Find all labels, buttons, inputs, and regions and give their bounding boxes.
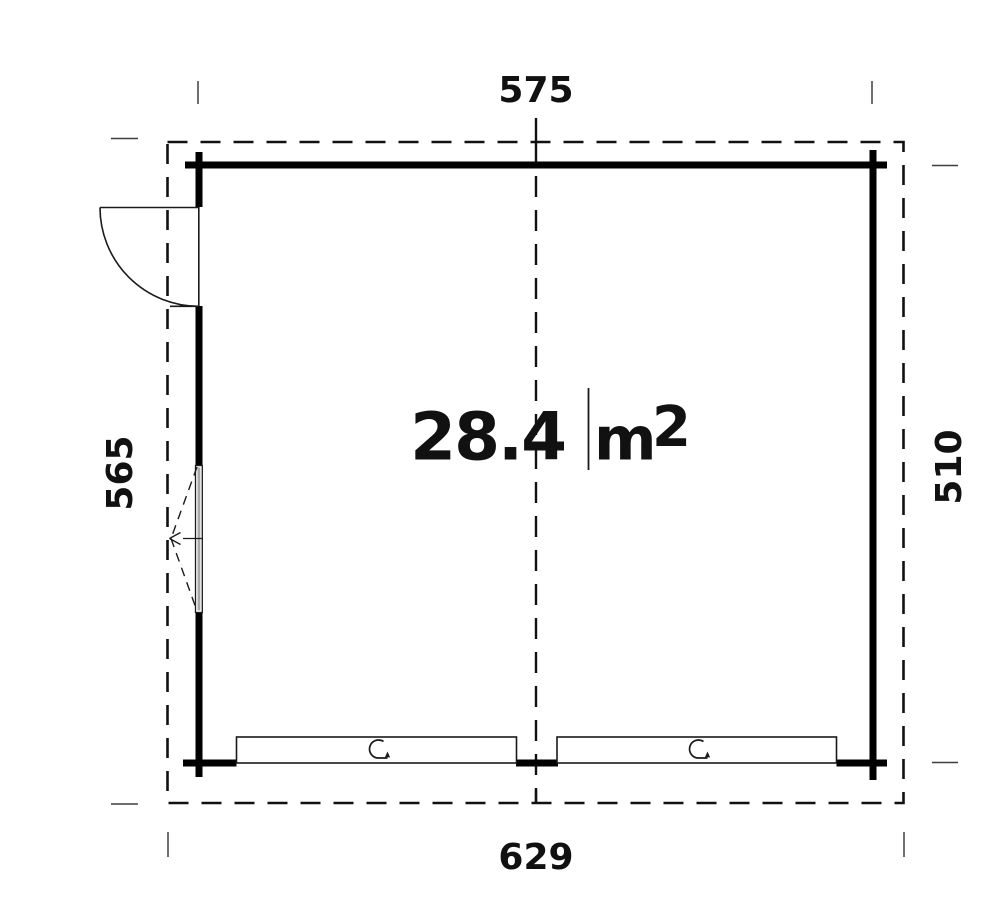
dimension-top-label: 575 <box>498 70 573 111</box>
dimension-left-label: 565 <box>100 435 141 510</box>
dimension-bottom-label: 629 <box>498 837 573 878</box>
area-value: 28.4 <box>410 399 565 476</box>
entry-door <box>100 207 199 306</box>
floor-plan-canvas: 575 629 565 510 28.4 m 2 <box>0 0 1000 923</box>
wall-left-upper <box>196 152 203 207</box>
wall-top <box>185 162 887 169</box>
window-tilt-dashed-icon <box>171 539 197 612</box>
area-unit: m <box>594 405 657 475</box>
door-swing-arc-icon <box>100 208 199 307</box>
wall-left-lower <box>196 613 203 777</box>
dimension-right-label: 510 <box>929 429 970 504</box>
window-arrow-upper-line <box>170 533 181 539</box>
wall-right <box>870 150 877 780</box>
floor-plan-drawing: 575 629 565 510 28.4 m 2 <box>0 0 1000 923</box>
window-tilt-dashed-icon <box>171 467 197 539</box>
wall-left-middle <box>196 306 203 465</box>
wall-bottom-middle-segment <box>516 760 558 767</box>
area-superscript: 2 <box>652 395 691 460</box>
window-arrow-lower-line <box>170 539 181 545</box>
window-left <box>170 466 204 613</box>
wall-bottom-left-segment <box>183 760 237 767</box>
area-label: 28.4 m 2 <box>410 388 691 476</box>
wall-bottom-right-segment <box>837 760 888 767</box>
